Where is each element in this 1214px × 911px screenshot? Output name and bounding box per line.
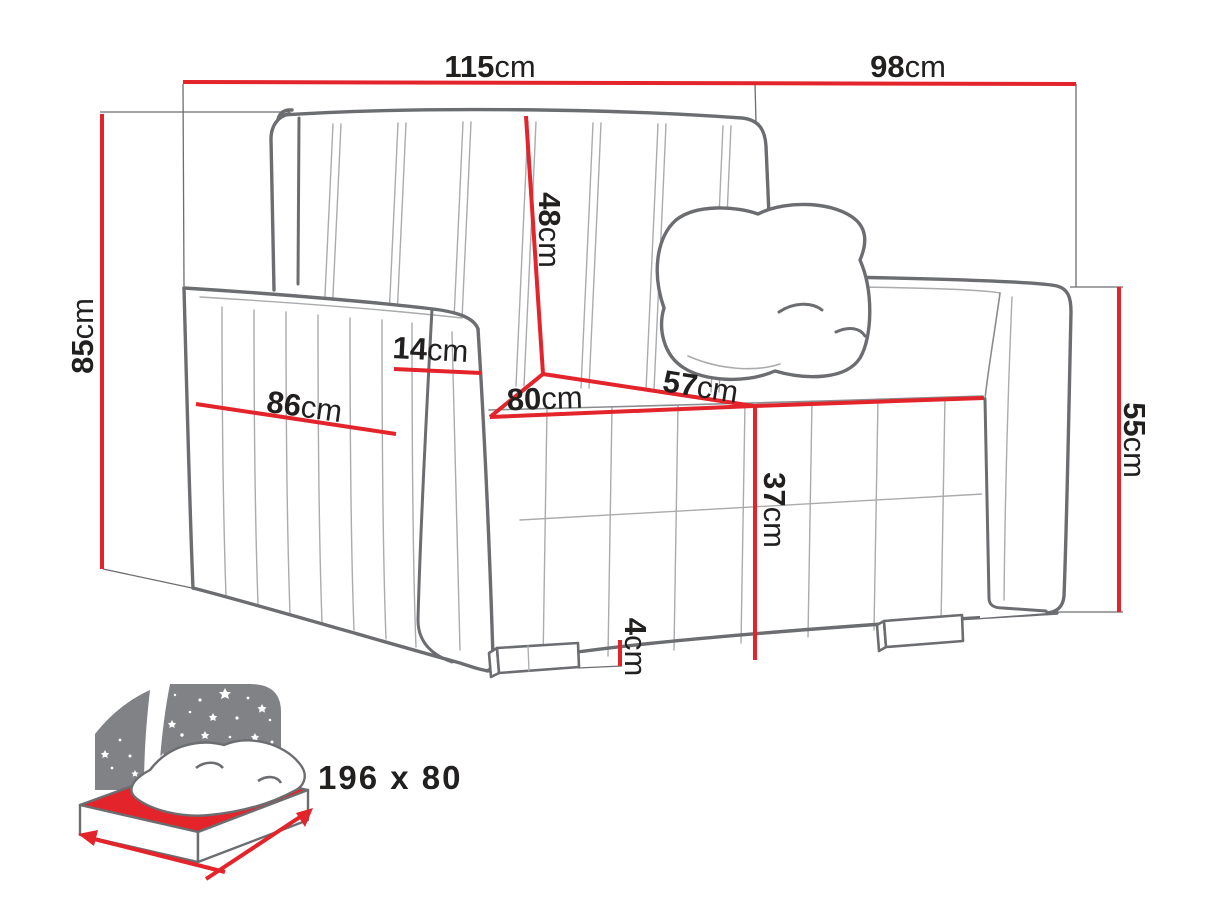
front-left-leg xyxy=(489,643,579,677)
dim-leg-height-label: 4cm xyxy=(618,618,653,677)
pillow xyxy=(657,204,870,379)
dim-overall-width-label: 115cm xyxy=(444,49,535,84)
dim-backrest-height-label: 48cm xyxy=(532,192,567,268)
sofa-bed-icon: 196 x 80 xyxy=(78,684,462,879)
right-rear-leg xyxy=(877,615,963,651)
dim-overall-depth-label: 98cm xyxy=(870,49,946,84)
dim-seat-height-label: 37cm xyxy=(757,472,792,548)
dim-side-height-label: 55cm xyxy=(1117,402,1152,478)
dim-armrest-width-label: 14cm xyxy=(392,330,470,369)
dim-overall-height-label: 85cm xyxy=(65,298,100,374)
dim-seat-width-label: 80cm xyxy=(506,380,583,418)
armchair-diagram-canvas: 115cm 98cm 85cm 48cm 14cm 86cm 80cm 57cm… xyxy=(0,0,1214,911)
sleeping-area-label: 196 x 80 xyxy=(318,759,462,796)
dimension-diagram: 115cm 98cm 85cm 48cm 14cm 86cm 80cm 57cm… xyxy=(0,0,1214,911)
